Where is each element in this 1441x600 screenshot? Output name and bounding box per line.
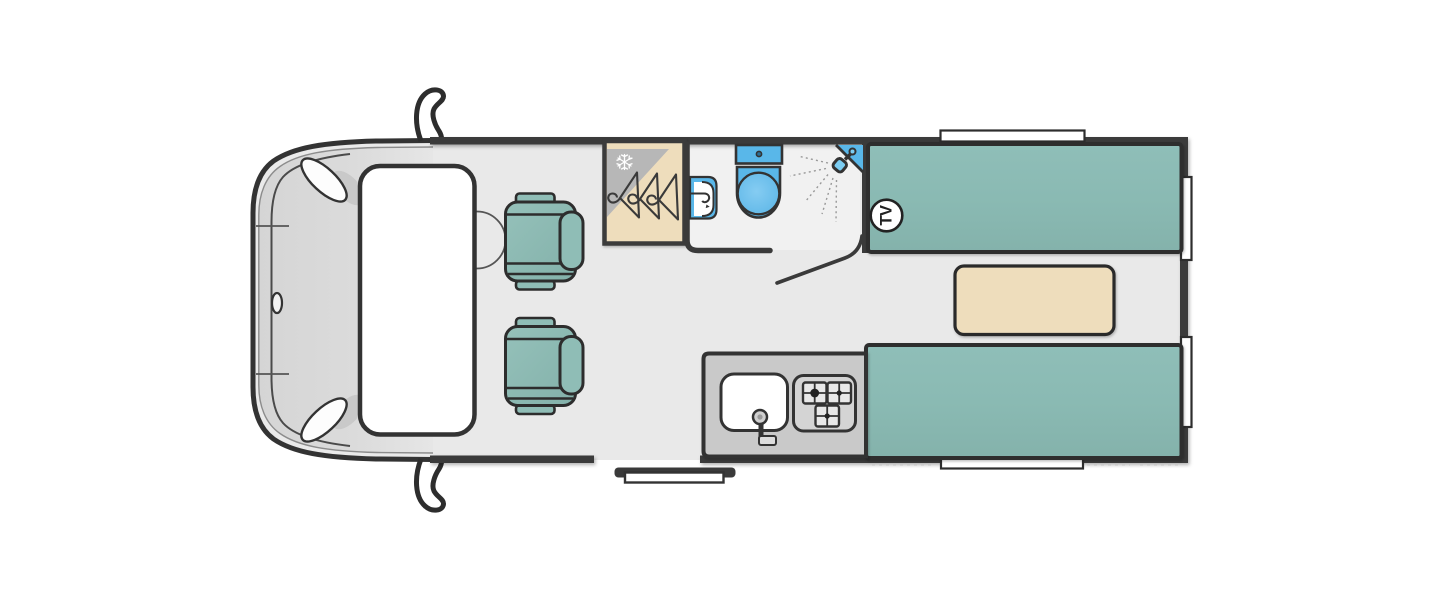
svg-text:TV: TV [878, 205, 896, 226]
